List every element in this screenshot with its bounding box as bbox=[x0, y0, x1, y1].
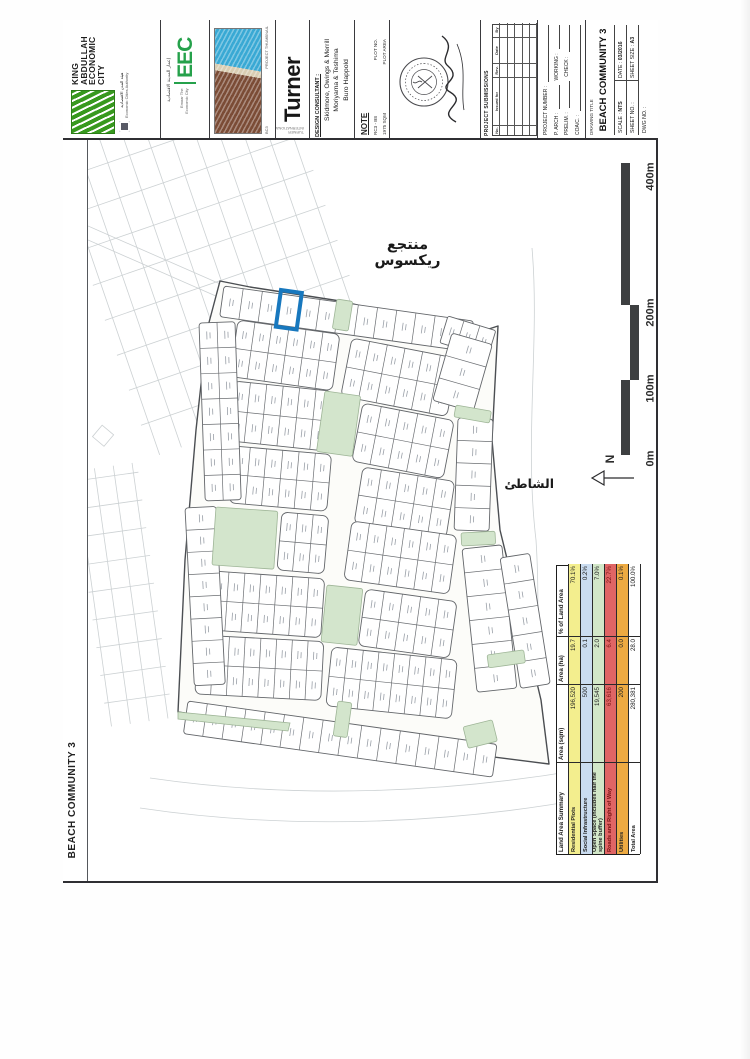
open-space-parcel bbox=[461, 531, 496, 546]
plot-block bbox=[228, 381, 333, 451]
scale-label-400m: 400m bbox=[645, 155, 658, 199]
north-arrow-icon bbox=[592, 471, 634, 485]
land-table-cell-label: Total Area bbox=[629, 762, 641, 854]
note-heading: NOTE bbox=[360, 25, 369, 135]
submissions-empty-cell bbox=[530, 23, 537, 37]
plot-block bbox=[209, 571, 325, 638]
submissions-col-header: Date bbox=[493, 37, 500, 63]
kaec-logo-icon bbox=[71, 90, 115, 134]
cell-stamp bbox=[390, 20, 481, 138]
submissions-empty-cell bbox=[530, 77, 537, 125]
submissions-empty-cell bbox=[508, 77, 515, 125]
land-table-cell-label: Residential Plots bbox=[569, 762, 581, 854]
scale-label-100m: 100m bbox=[645, 367, 658, 411]
land-table-cell-sqm: 500 bbox=[581, 684, 593, 762]
submissions-empty-cell bbox=[523, 23, 530, 37]
land-table-cell-ha: 6.4 bbox=[605, 636, 617, 684]
title-block: KING ABDULLAH ECONOMIC CITY هيئة المدن ا… bbox=[63, 20, 658, 140]
submissions-col-header: Issued for bbox=[493, 77, 500, 125]
land-table-cell-ha: 0.1 bbox=[581, 636, 593, 684]
rixos-resort-label: منتجع ريكسوس bbox=[355, 237, 460, 269]
land-table-cell-label: Social Infrastructure bbox=[581, 762, 593, 854]
submissions-empty-cell bbox=[523, 63, 530, 77]
date-value: 03/2016 bbox=[618, 41, 624, 60]
thumbnail-label: PROJECT THUMBNAIL bbox=[264, 26, 269, 69]
cell-project-submissions: PROJECT SUBMISSIONS No.Issued forRev.Dat… bbox=[481, 20, 538, 138]
beach-label: الشاطئ bbox=[494, 476, 554, 491]
eec-arabic-text: إعمار المدينة الاقتصادية bbox=[167, 24, 172, 136]
submissions-empty-cell bbox=[515, 37, 522, 63]
land-table-cell-ha: 0.0 bbox=[617, 636, 629, 684]
signature bbox=[442, 36, 456, 122]
consultant-line: Skidmore, Owings & Merrill bbox=[324, 23, 331, 137]
cell-drawing-title: DRAWING TITLE BEACH COMMUNITY 3 SCALE : … bbox=[586, 20, 658, 138]
cell-turner-logo: TURNER INTERNATIONAL Turner bbox=[276, 20, 310, 138]
scanned-drawing-sheet: KING ABDULLAH ECONOMIC CITY هيئة المدن ا… bbox=[0, 0, 750, 1059]
plot-block bbox=[454, 418, 493, 531]
submissions-empty-cell bbox=[500, 23, 507, 37]
land-table-cell-sqm: 63,616 bbox=[605, 684, 617, 762]
drawing-title: BEACH COMMUNITY 3 bbox=[594, 25, 615, 135]
submissions-empty-cell bbox=[500, 77, 507, 125]
land-area-table-outer: Land Area SummaryArea (sqm)Area (ha)% of… bbox=[556, 565, 640, 855]
submissions-table: No.Issued forRev.DateBy bbox=[492, 24, 538, 136]
land-table-cell-label: Open Space (includes half the spine buff… bbox=[593, 762, 605, 854]
thumbnail-code: BC3 bbox=[264, 126, 269, 134]
land-table-cell-pct: 100.0% bbox=[629, 564, 641, 636]
land-table-cell-label: Roads and Right of Way bbox=[605, 762, 617, 854]
land-table-header: Area (ha) bbox=[557, 636, 569, 684]
turner-logo-text: Turner bbox=[282, 57, 304, 122]
submissions-empty-cell bbox=[500, 37, 507, 63]
land-table-cell-pct: 70.1% bbox=[569, 564, 581, 636]
submissions-empty-cell bbox=[530, 125, 537, 135]
cell-note: NOTE RC3 - B8 PLOT NO. 1975 SQM PLOT ARE… bbox=[355, 20, 390, 138]
open-space-parcel bbox=[212, 507, 278, 569]
cell-kaec-logo: KING ABDULLAH ECONOMIC CITY هيئة المدن ا… bbox=[63, 20, 161, 138]
submissions-empty-cell bbox=[508, 63, 515, 77]
land-table-header: Area (sqm) bbox=[557, 684, 569, 762]
submissions-empty-cell bbox=[508, 23, 515, 37]
sheet-side-label: BEACH COMMUNITY 3 bbox=[67, 725, 83, 875]
plot-block bbox=[358, 589, 457, 658]
submissions-empty-cell bbox=[508, 125, 515, 135]
eec-english-text: Emaar The Economic City bbox=[180, 88, 189, 122]
submissions-empty-cell bbox=[515, 23, 522, 37]
north-label: N bbox=[603, 450, 617, 468]
land-table-header: % of Land Area bbox=[557, 564, 569, 636]
land-area-summary-table: Land Area SummaryArea (sqm)Area (ha)% of… bbox=[556, 565, 640, 855]
submissions-empty-cell bbox=[530, 63, 537, 77]
kaec-logo-text: KING ABDULLAH ECONOMIC CITY bbox=[71, 36, 106, 85]
consultant-heading: DESIGN CONSULTANT : bbox=[315, 23, 321, 137]
land-table-cell-ha: 19.7 bbox=[569, 636, 581, 684]
land-table-cell-ha: 2.0 bbox=[593, 636, 605, 684]
approval-stamp-icon bbox=[390, 20, 481, 138]
land-table-cell-sqm: 19,545 bbox=[593, 684, 605, 762]
scale-label-0m: 0m bbox=[645, 437, 658, 481]
eec-logo-text: EEC bbox=[175, 38, 196, 78]
submissions-heading: PROJECT SUBMISSIONS bbox=[484, 24, 490, 136]
aerial-photo-thumbnail bbox=[214, 28, 262, 134]
economic-cities-authority-logo: هيئة المدن الاقتصادية Economic Cities Au… bbox=[119, 20, 130, 138]
land-table-cell-sqm: 280,381 bbox=[629, 684, 641, 762]
cell-eec-logo: إعمار المدينة الاقتصادية Emaar The Econo… bbox=[161, 20, 210, 138]
submissions-col-header: Rev. bbox=[493, 63, 500, 77]
cell-project-thumbnail: BC3 PROJECT THUMBNAIL bbox=[210, 20, 276, 138]
land-table-cell-pct: 0.2% bbox=[581, 564, 593, 636]
submissions-empty-cell bbox=[508, 37, 515, 63]
land-table-cell-ha: 28.0 bbox=[629, 636, 641, 684]
land-table-cell-pct: 7.0% bbox=[593, 564, 605, 636]
land-table-cell-pct: 0.1% bbox=[617, 564, 629, 636]
submissions-empty-cell bbox=[500, 125, 507, 135]
submissions-empty-cell bbox=[515, 77, 522, 125]
cell-project-management: PROJECT NUMBER : P. ARCH :WORKING : PREL… bbox=[538, 20, 586, 138]
cell-design-consultant: DESIGN CONSULTANT : Skidmore, Owings & M… bbox=[310, 20, 355, 138]
scale-bar bbox=[621, 163, 639, 455]
eec-logo-bar bbox=[174, 82, 196, 85]
land-table-header: Land Area Summary bbox=[557, 762, 569, 854]
plot-block bbox=[277, 512, 329, 574]
submissions-empty-cell bbox=[515, 63, 522, 77]
submissions-col-header: No. bbox=[493, 125, 500, 135]
land-table-cell-label: Utilities bbox=[617, 762, 629, 854]
scale-value: NTS bbox=[618, 101, 624, 111]
submissions-empty-cell bbox=[523, 37, 530, 63]
submissions-empty-cell bbox=[530, 37, 537, 63]
submissions-empty-cell bbox=[523, 77, 530, 125]
authority-emblem-icon bbox=[119, 121, 130, 132]
land-table-cell-sqm: 196,520 bbox=[569, 684, 581, 762]
land-table-cell-pct: 22.7% bbox=[605, 564, 617, 636]
submissions-empty-cell bbox=[523, 125, 530, 135]
scale-label-200m: 200m bbox=[645, 291, 658, 335]
sheet-size-value: A3 bbox=[630, 37, 636, 44]
consultant-line: Moriyama & Teshima bbox=[333, 23, 340, 137]
submissions-col-header: By bbox=[493, 23, 500, 37]
consultant-line: Buro Happold bbox=[343, 23, 350, 137]
submissions-empty-cell bbox=[515, 125, 522, 135]
plot-block bbox=[229, 446, 332, 511]
open-space-parcel bbox=[321, 585, 363, 645]
plot-block bbox=[199, 322, 241, 501]
submissions-empty-cell bbox=[500, 63, 507, 77]
turner-sub-text: TURNER INTERNATIONAL bbox=[280, 126, 304, 134]
land-table-cell-sqm: 200 bbox=[617, 684, 629, 762]
